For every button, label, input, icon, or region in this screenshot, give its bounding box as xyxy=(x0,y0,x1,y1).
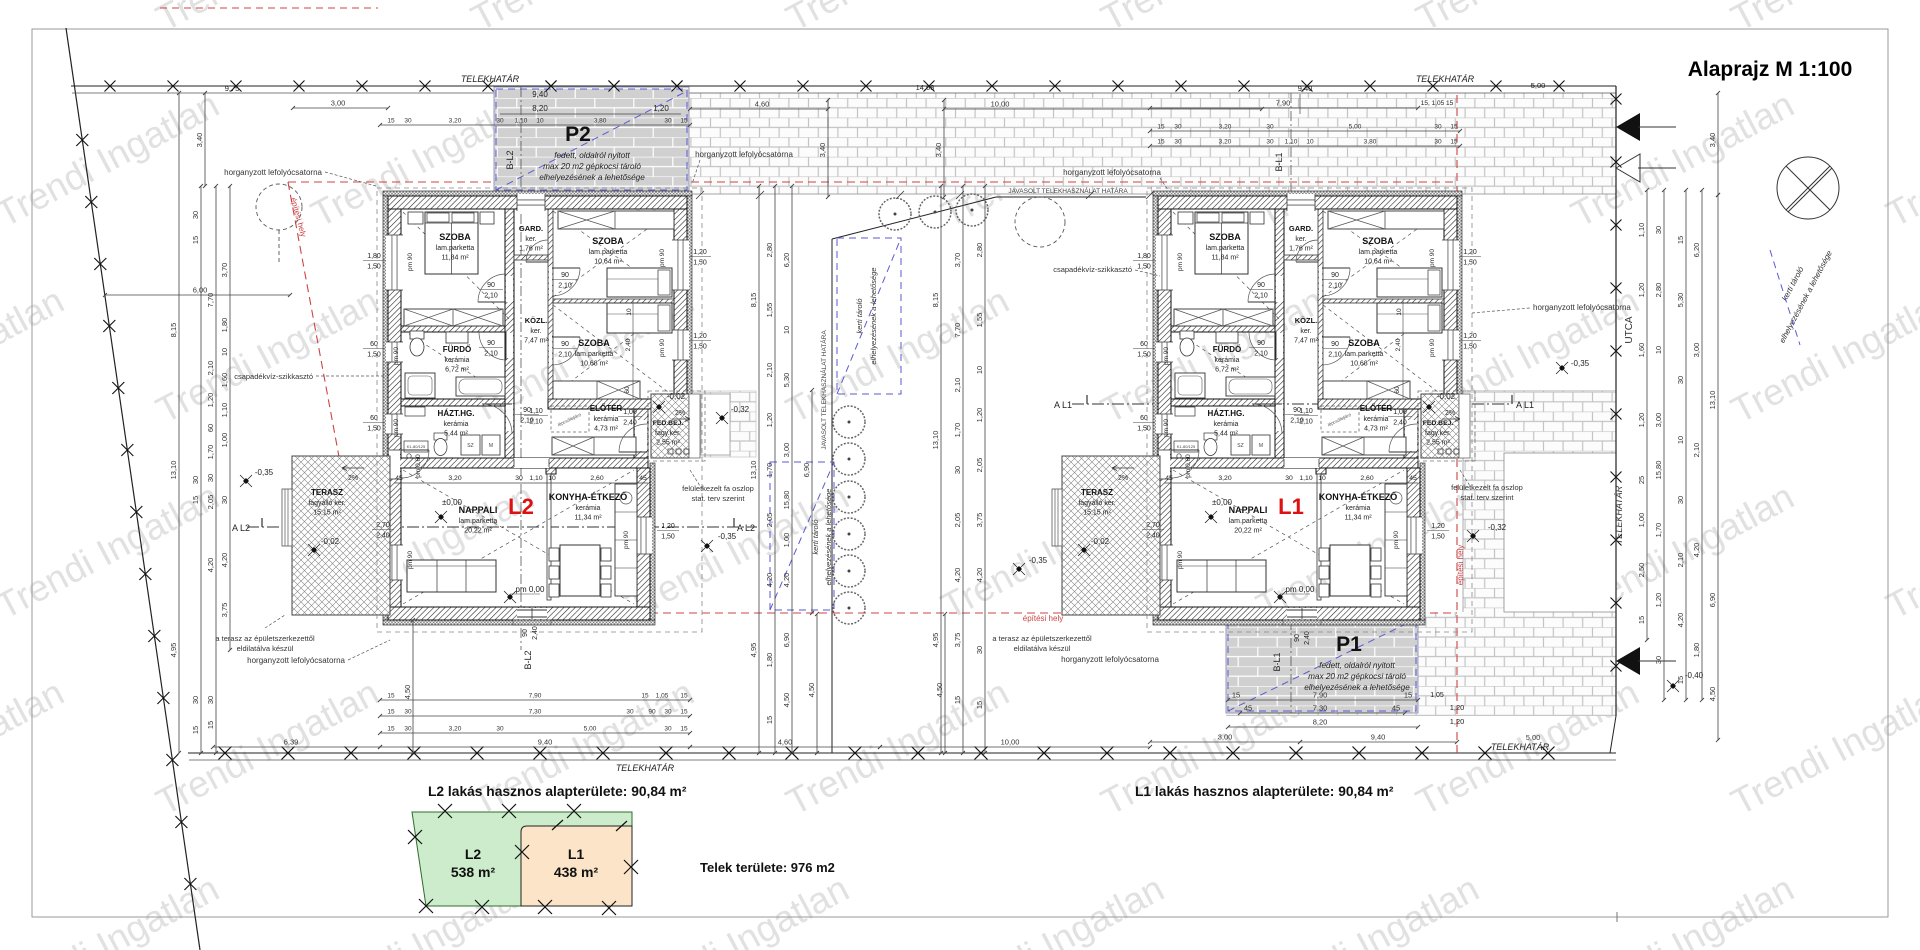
svg-text:10,68 m²: 10,68 m² xyxy=(580,361,608,368)
svg-text:horganyzott lefolyócsatorna: horganyzott lefolyócsatorna xyxy=(1061,655,1159,664)
svg-text:15: 15 xyxy=(680,726,688,733)
svg-text:A L1: A L1 xyxy=(1516,400,1534,410)
svg-text:ELŐTÉR: ELŐTÉR xyxy=(590,404,623,413)
svg-text:M: M xyxy=(489,443,493,449)
svg-text:horganyzott lefolyócsatorna: horganyzott lefolyócsatorna xyxy=(1533,303,1631,312)
svg-text:1,70: 1,70 xyxy=(1654,523,1663,538)
svg-text:L1 lakás hasznos alapterülete:: L1 lakás hasznos alapterülete: 90,84 m² xyxy=(1135,784,1394,799)
svg-text:15, 1,05 15: 15, 1,05 15 xyxy=(1421,100,1454,107)
svg-text:3,40: 3,40 xyxy=(1708,133,1717,148)
svg-text:14,68: 14,68 xyxy=(916,83,935,92)
svg-text:15: 15 xyxy=(387,693,395,700)
svg-text:lam.parketta: lam.parketta xyxy=(436,245,475,252)
svg-text:2,10: 2,10 xyxy=(558,283,572,290)
svg-text:60: 60 xyxy=(624,386,631,394)
svg-text:2,10: 2,10 xyxy=(206,361,215,376)
svg-text:7,90: 7,90 xyxy=(1276,99,1291,108)
svg-text:1,20: 1,20 xyxy=(206,393,215,408)
svg-text:1,76 m²: 1,76 m² xyxy=(519,246,543,253)
svg-text:4,20: 4,20 xyxy=(765,573,774,588)
svg-text:30: 30 xyxy=(1676,496,1685,504)
svg-text:1,70: 1,70 xyxy=(206,445,215,460)
svg-text:30: 30 xyxy=(1266,139,1274,146)
svg-text:-0,40: -0,40 xyxy=(1685,671,1704,680)
svg-text:5,30: 5,30 xyxy=(1676,293,1685,308)
svg-text:7,90: 7,90 xyxy=(529,693,542,700)
svg-text:3,20: 3,20 xyxy=(449,726,462,733)
svg-text:ker.: ker. xyxy=(525,236,536,243)
svg-text:30: 30 xyxy=(975,646,984,654)
svg-text:KÖZL.: KÖZL. xyxy=(525,316,548,325)
svg-text:15: 15 xyxy=(1157,124,1165,131)
svg-text:JAVASOLT TELEKHASZNÁLAT HATÁRA: JAVASOLT TELEKHASZNÁLAT HATÁRA xyxy=(1008,186,1128,195)
svg-text:45: 45 xyxy=(395,475,403,482)
svg-text:13,10: 13,10 xyxy=(931,431,940,450)
svg-text:4,95: 4,95 xyxy=(169,643,178,658)
svg-text:elhelyezésének a-lehetősége: elhelyezésének a-lehetősége xyxy=(869,267,878,364)
svg-text:15: 15 xyxy=(680,118,688,125)
svg-text:6,90: 6,90 xyxy=(802,463,811,478)
svg-text:6,90: 6,90 xyxy=(1708,593,1717,608)
svg-text:3,20: 3,20 xyxy=(448,475,461,482)
svg-text:kerámia: kerámia xyxy=(445,357,470,364)
svg-text:90: 90 xyxy=(1294,634,1301,642)
svg-text:KONYHA-ÉTKEZŐ: KONYHA-ÉTKEZŐ xyxy=(549,491,628,502)
svg-text:TELEKHATÁR: TELEKHATÁR xyxy=(1491,742,1550,752)
svg-text:-0,35: -0,35 xyxy=(255,468,274,477)
svg-text:fagy.ker.: fagy.ker. xyxy=(655,430,681,437)
svg-text:SZOBA: SZOBA xyxy=(439,232,471,242)
svg-text:9,40: 9,40 xyxy=(1298,84,1313,93)
svg-text:15: 15 xyxy=(191,496,200,504)
svg-text:10: 10 xyxy=(1676,436,1685,444)
svg-text:20,22 m²: 20,22 m² xyxy=(464,528,492,535)
svg-text:P2: P2 xyxy=(565,123,591,146)
svg-text:4,60: 4,60 xyxy=(778,738,793,747)
svg-text:1,80: 1,80 xyxy=(367,253,381,260)
svg-text:pm 90: pm 90 xyxy=(407,551,414,569)
svg-text:15: 15 xyxy=(975,701,984,709)
svg-text:5,00: 5,00 xyxy=(1531,81,1546,90)
svg-text:30: 30 xyxy=(664,726,672,733)
svg-text:13,10: 13,10 xyxy=(1708,391,1717,410)
svg-text:45: 45 xyxy=(1392,704,1400,713)
svg-text:15: 15 xyxy=(1450,139,1458,146)
svg-text:pm 90: pm 90 xyxy=(659,249,666,267)
svg-text:30: 30 xyxy=(953,466,962,474)
svg-text:B-L1: B-L1 xyxy=(1274,152,1284,171)
svg-text:max 20 m2 gépkocsi tároló: max 20 m2 gépkocsi tároló xyxy=(543,162,641,171)
svg-text:10: 10 xyxy=(782,326,791,334)
svg-text:3,00: 3,00 xyxy=(1654,413,1663,428)
svg-text:SZOBA: SZOBA xyxy=(578,338,610,348)
svg-text:10,64 m²: 10,64 m² xyxy=(594,259,622,266)
svg-text:8,15: 8,15 xyxy=(931,293,940,308)
svg-text:15: 15 xyxy=(387,118,395,125)
svg-text:10: 10 xyxy=(536,118,544,125)
svg-text:pm 90: pm 90 xyxy=(623,531,630,549)
svg-text:lam.parketta: lam.parketta xyxy=(589,249,628,256)
svg-text:5,44 m²: 5,44 m² xyxy=(444,431,468,438)
svg-text:15: 15 xyxy=(680,709,688,716)
svg-text:4,95: 4,95 xyxy=(749,643,758,658)
svg-text:pm 90: pm 90 xyxy=(659,339,666,357)
svg-text:1,70: 1,70 xyxy=(953,423,962,438)
svg-text:6,72 m²: 6,72 m² xyxy=(445,367,469,374)
svg-text:2,70: 2,70 xyxy=(376,522,390,529)
svg-text:7,30: 7,30 xyxy=(529,709,542,716)
svg-text:±0,00: ±0,00 xyxy=(442,498,463,507)
svg-text:30: 30 xyxy=(191,476,200,484)
svg-text:B-L1: B-L1 xyxy=(1272,652,1282,671)
svg-text:6,00: 6,00 xyxy=(193,286,208,295)
svg-text:3,75: 3,75 xyxy=(220,603,229,618)
svg-text:1,10: 1,10 xyxy=(515,118,528,125)
svg-text:L1: L1 xyxy=(568,846,585,862)
svg-text:kerti tároló: kerti tároló xyxy=(855,298,864,333)
svg-text:2,10: 2,10 xyxy=(1692,443,1701,458)
svg-text:3,20: 3,20 xyxy=(1219,124,1232,131)
svg-text:horganyzott lefolyócsatorna: horganyzott lefolyócsatorna xyxy=(247,656,345,665)
svg-text:pm 90: pm 90 xyxy=(407,253,414,271)
svg-text:3,80: 3,80 xyxy=(1364,139,1377,146)
svg-text:30: 30 xyxy=(191,211,200,219)
svg-text:30: 30 xyxy=(220,496,229,504)
svg-text:elhelyezésének a lehetősége: elhelyezésének a lehetősége xyxy=(824,489,833,586)
svg-text:stat. terv szerint: stat. terv szerint xyxy=(1461,493,1515,502)
svg-text:2%: 2% xyxy=(348,475,358,482)
svg-text:8,20: 8,20 xyxy=(1313,718,1328,727)
svg-text:1,20: 1,20 xyxy=(1654,593,1663,608)
svg-text:1,50: 1,50 xyxy=(367,264,381,271)
svg-text:-0,35: -0,35 xyxy=(1029,556,1048,565)
svg-text:L2 lakás hasznos alapterülete:: L2 lakás hasznos alapterülete: 90,84 m² xyxy=(428,784,687,799)
svg-text:SZ: SZ xyxy=(467,443,473,449)
svg-text:4,20: 4,20 xyxy=(1676,613,1685,628)
svg-text:15,15 m²: 15,15 m² xyxy=(313,510,341,517)
svg-text:1,20: 1,20 xyxy=(693,249,707,256)
svg-text:15: 15 xyxy=(1637,616,1646,624)
svg-text:FED.BEJ.: FED.BEJ. xyxy=(653,420,684,427)
svg-text:3,40: 3,40 xyxy=(195,133,204,148)
svg-text:TELEKHATÁR: TELEKHATÁR xyxy=(1614,485,1624,544)
svg-text:lam.parketta: lam.parketta xyxy=(575,351,614,358)
svg-text:kerámia: kerámia xyxy=(576,505,601,512)
svg-text:kerámia: kerámia xyxy=(594,416,619,423)
svg-text:10: 10 xyxy=(220,348,229,356)
svg-text:30: 30 xyxy=(206,696,215,704)
svg-text:2,05: 2,05 xyxy=(206,495,215,510)
svg-text:30: 30 xyxy=(1654,226,1663,234)
svg-text:45: 45 xyxy=(639,475,647,482)
svg-text:1,60: 1,60 xyxy=(1637,343,1646,358)
svg-text:1,80: 1,80 xyxy=(220,318,229,333)
svg-text:B-L2: B-L2 xyxy=(505,150,515,169)
svg-text:lam.parketta: lam.parketta xyxy=(459,518,498,525)
svg-text:5,00: 5,00 xyxy=(1526,733,1541,742)
svg-text:15: 15 xyxy=(1450,124,1458,131)
svg-text:1,20: 1,20 xyxy=(1637,283,1646,298)
svg-text:7,30: 7,30 xyxy=(1313,704,1328,713)
svg-text:4,50: 4,50 xyxy=(782,693,791,708)
svg-text:-0,35: -0,35 xyxy=(1571,359,1590,368)
svg-text:1,50: 1,50 xyxy=(693,260,707,267)
svg-text:1,00: 1,00 xyxy=(1637,513,1646,528)
svg-text:9,40: 9,40 xyxy=(538,738,553,747)
svg-text:3,75: 3,75 xyxy=(953,633,962,648)
svg-text:1,20: 1,20 xyxy=(975,408,984,423)
svg-text:7,47 m²: 7,47 m² xyxy=(524,338,548,345)
svg-text:2,05: 2,05 xyxy=(975,458,984,473)
svg-text:6,90: 6,90 xyxy=(782,633,791,648)
svg-text:3,40: 3,40 xyxy=(934,143,943,158)
svg-text:25: 25 xyxy=(1637,476,1646,484)
svg-text:1,00: 1,00 xyxy=(782,533,791,548)
svg-text:6,20: 6,20 xyxy=(1692,243,1701,258)
svg-text:2,80: 2,80 xyxy=(975,243,984,258)
svg-text:30: 30 xyxy=(404,118,412,125)
svg-text:2,10: 2,10 xyxy=(484,351,498,358)
svg-text:30: 30 xyxy=(1654,656,1663,664)
svg-text:3,70: 3,70 xyxy=(953,253,962,268)
svg-text:L2: L2 xyxy=(465,846,482,862)
svg-text:-0,02: -0,02 xyxy=(321,537,340,546)
svg-text:15: 15 xyxy=(191,726,200,734)
svg-text:15,80: 15,80 xyxy=(782,491,791,510)
svg-text:stat. terv szerint: stat. terv szerint xyxy=(692,494,746,503)
svg-text:1,50: 1,50 xyxy=(367,426,381,433)
svg-text:1,55: 1,55 xyxy=(975,313,984,328)
svg-text:UTCA: UTCA xyxy=(1624,316,1635,344)
svg-text:-0,32: -0,32 xyxy=(1488,523,1507,532)
svg-text:45: 45 xyxy=(1244,704,1252,713)
svg-text:a terasz az épületszerkezettől: a terasz az épületszerkezettől xyxy=(992,634,1092,643)
svg-text:fedett, oldalról nyitott: fedett, oldalról nyitott xyxy=(1319,661,1395,670)
svg-text:8,15: 8,15 xyxy=(749,293,758,308)
svg-text:3,00: 3,00 xyxy=(1218,733,1233,742)
svg-text:30: 30 xyxy=(496,118,504,125)
svg-text:Telek területe: 976 m2: Telek területe: 976 m2 xyxy=(700,860,835,875)
svg-text:2,05: 2,05 xyxy=(765,513,774,528)
svg-text:5,30: 5,30 xyxy=(782,373,791,388)
svg-text:TELEKHATÁR: TELEKHATÁR xyxy=(1416,74,1475,84)
svg-text:horganyzott lefolyócsatorna: horganyzott lefolyócsatorna xyxy=(1063,168,1161,177)
svg-text:11,34 m²: 11,34 m² xyxy=(574,515,602,522)
svg-text:2,40: 2,40 xyxy=(623,420,637,427)
svg-text:30: 30 xyxy=(626,709,634,716)
svg-text:4,20: 4,20 xyxy=(953,568,962,583)
svg-text:1,20: 1,20 xyxy=(765,413,774,428)
svg-text:11,84 m²: 11,84 m² xyxy=(441,255,469,262)
svg-text:A L2: A L2 xyxy=(737,523,755,533)
svg-text:SZOBA: SZOBA xyxy=(592,236,624,246)
svg-text:10,00: 10,00 xyxy=(991,100,1010,109)
svg-text:3,75: 3,75 xyxy=(975,513,984,528)
svg-text:1,10: 1,10 xyxy=(529,408,543,415)
svg-text:3,80: 3,80 xyxy=(594,118,607,125)
svg-text:15: 15 xyxy=(206,721,215,729)
svg-text:30: 30 xyxy=(404,709,412,716)
svg-text:1,10: 1,10 xyxy=(529,475,542,482)
svg-text:A L2: A L2 xyxy=(232,523,250,533)
svg-text:30: 30 xyxy=(1434,139,1442,146)
svg-text:15: 15 xyxy=(387,709,395,716)
svg-text:TELEKHATÁR: TELEKHATÁR xyxy=(461,74,520,84)
svg-text:csapadékvíz-szikkasztó: csapadékvíz-szikkasztó xyxy=(234,372,313,381)
svg-text:1,20: 1,20 xyxy=(653,104,669,113)
svg-text:1,80: 1,80 xyxy=(765,653,774,668)
svg-text:1,00: 1,00 xyxy=(623,409,637,416)
svg-text:2,10: 2,10 xyxy=(765,363,774,378)
svg-text:kerámia: kerámia xyxy=(444,421,469,428)
svg-text:4,50: 4,50 xyxy=(403,685,412,700)
svg-text:1,20: 1,20 xyxy=(1450,717,1465,726)
svg-text:30: 30 xyxy=(1266,124,1274,131)
svg-text:HÁZT.HG.: HÁZT.HG. xyxy=(438,409,475,418)
svg-text:TELEKHATÁR: TELEKHATÁR xyxy=(616,763,675,773)
svg-text:6,39: 6,39 xyxy=(284,738,299,747)
svg-text:60: 60 xyxy=(206,424,215,432)
svg-text:4,20: 4,20 xyxy=(220,553,229,568)
svg-text:9,40: 9,40 xyxy=(1371,733,1386,742)
svg-text:2,40: 2,40 xyxy=(625,338,632,351)
svg-text:felületkezelt fa oszlop: felületkezelt fa oszlop xyxy=(1451,483,1523,492)
svg-text:1,50: 1,50 xyxy=(367,352,381,359)
svg-text:2,10: 2,10 xyxy=(558,352,572,359)
svg-text:2,10: 2,10 xyxy=(484,293,498,300)
svg-text:10,00: 10,00 xyxy=(1001,738,1020,747)
svg-text:2%: 2% xyxy=(675,410,685,417)
svg-text:ker.: ker. xyxy=(530,328,541,335)
svg-text:max 20 m2 gépkocsi tároló: max 20 m2 gépkocsi tároló xyxy=(1308,672,1406,681)
svg-text:10: 10 xyxy=(548,475,556,482)
svg-text:4,95: 4,95 xyxy=(931,633,940,648)
svg-text:3,00: 3,00 xyxy=(782,443,791,458)
svg-text:horganyzott lefolyócsatorna: horganyzott lefolyócsatorna xyxy=(224,168,322,177)
svg-text:1,05: 1,05 xyxy=(656,693,669,700)
svg-text:2,10: 2,10 xyxy=(1676,553,1685,568)
svg-text:3,00: 3,00 xyxy=(331,99,346,108)
svg-text:8,20: 8,20 xyxy=(532,104,548,113)
svg-text:2,80: 2,80 xyxy=(1654,283,1663,298)
svg-text:pm 0,00: pm 0,00 xyxy=(516,585,545,594)
svg-text:30: 30 xyxy=(1174,124,1182,131)
svg-text:15: 15 xyxy=(387,726,395,733)
svg-text:10: 10 xyxy=(626,308,633,316)
svg-text:90: 90 xyxy=(648,709,656,716)
svg-text:15: 15 xyxy=(680,693,688,700)
svg-text:9,75: 9,75 xyxy=(225,84,240,93)
svg-text:2,60: 2,60 xyxy=(590,475,603,482)
svg-text:15: 15 xyxy=(191,236,200,244)
svg-text:1,20: 1,20 xyxy=(1450,703,1465,712)
svg-text:90: 90 xyxy=(522,629,529,637)
svg-text:L2: L2 xyxy=(508,494,534,519)
svg-text:3,20: 3,20 xyxy=(449,118,462,125)
svg-text:4,73 m²: 4,73 m² xyxy=(594,426,618,433)
svg-text:4,20: 4,20 xyxy=(1692,543,1701,558)
svg-text:13,10: 13,10 xyxy=(169,461,178,480)
svg-text:1,00: 1,00 xyxy=(220,433,229,448)
svg-text:30: 30 xyxy=(1434,124,1442,131)
svg-text:JAVASOLT TELEKHASZNÁLAT HATÁRA: JAVASOLT TELEKHASZNÁLAT HATÁRA xyxy=(819,330,828,450)
svg-text:90: 90 xyxy=(487,340,495,347)
svg-text:eldilatálva készül: eldilatálva készül xyxy=(1014,644,1071,653)
svg-text:-0,32: -0,32 xyxy=(731,405,750,414)
svg-text:P1: P1 xyxy=(1336,633,1362,656)
svg-text:15: 15 xyxy=(1157,139,1165,146)
svg-text:fagyálló ker.: fagyálló ker. xyxy=(308,500,345,507)
svg-text:K1-80/125: K1-80/125 xyxy=(407,444,426,449)
svg-text:1,10: 1,10 xyxy=(220,403,229,418)
svg-text:1,80: 1,80 xyxy=(1692,643,1701,658)
svg-text:15: 15 xyxy=(1676,676,1685,684)
svg-text:2,80: 2,80 xyxy=(765,243,774,258)
svg-text:5,00: 5,00 xyxy=(584,726,597,733)
svg-text:3,70: 3,70 xyxy=(220,263,229,278)
svg-text:1,10: 1,10 xyxy=(1637,223,1646,238)
svg-text:1,50: 1,50 xyxy=(693,344,707,351)
svg-text:10: 10 xyxy=(1654,346,1663,354)
svg-text:1,05: 1,05 xyxy=(1430,692,1444,699)
svg-text:építési hely: építési hely xyxy=(1456,545,1465,585)
svg-text:4,50: 4,50 xyxy=(807,683,816,698)
svg-text:eldilatálva készül: eldilatálva készül xyxy=(237,644,294,653)
svg-text:Alaprajz M 1:100: Alaprajz M 1:100 xyxy=(1688,58,1853,81)
svg-text:15: 15 xyxy=(1676,236,1685,244)
svg-text:2,05: 2,05 xyxy=(953,513,962,528)
svg-text:30: 30 xyxy=(515,475,523,482)
svg-text:felületkezelt fa oszlop: felületkezelt fa oszlop xyxy=(682,484,754,493)
svg-text:1,55: 1,55 xyxy=(765,303,774,318)
svg-text:TERASZ: TERASZ xyxy=(311,488,343,497)
svg-text:építési hely: építési hely xyxy=(1023,614,1063,623)
svg-text:NAPPALI: NAPPALI xyxy=(459,505,498,515)
svg-text:4,20: 4,20 xyxy=(975,568,984,583)
svg-text:1,10: 1,10 xyxy=(1285,139,1298,146)
svg-text:horganyzott lefolyócsatorna: horganyzott lefolyócsatorna xyxy=(695,150,793,159)
svg-text:15: 15 xyxy=(1232,691,1240,700)
svg-text:-0,02: -0,02 xyxy=(667,392,686,401)
svg-text:30: 30 xyxy=(206,474,215,482)
svg-text:7,90: 7,90 xyxy=(1313,691,1328,700)
svg-text:1,70: 1,70 xyxy=(765,463,774,478)
svg-text:30: 30 xyxy=(1676,376,1685,384)
svg-text:30: 30 xyxy=(664,118,672,125)
svg-text:2,40: 2,40 xyxy=(532,626,539,640)
svg-text:1,60: 1,60 xyxy=(220,373,229,388)
svg-text:7,70: 7,70 xyxy=(953,323,962,338)
svg-text:3,20: 3,20 xyxy=(1219,139,1232,146)
svg-text:1,50: 1,50 xyxy=(661,534,675,541)
svg-text:90: 90 xyxy=(561,272,569,279)
svg-text:538 m²: 538 m² xyxy=(451,864,496,880)
svg-text:2,50: 2,50 xyxy=(1637,563,1646,578)
svg-text:3,00: 3,00 xyxy=(1692,343,1701,358)
svg-text:L1: L1 xyxy=(1278,494,1304,519)
svg-text:10: 10 xyxy=(975,366,984,374)
svg-text:15: 15 xyxy=(1404,691,1412,700)
svg-text:4,50: 4,50 xyxy=(935,683,944,698)
svg-text:438 m²: 438 m² xyxy=(554,864,599,880)
svg-text:pm 90: pm 90 xyxy=(393,347,400,365)
svg-text:4,20: 4,20 xyxy=(782,573,791,588)
svg-text:1,20: 1,20 xyxy=(661,523,675,530)
svg-text:B-L2: B-L2 xyxy=(523,650,533,669)
svg-text:3,40: 3,40 xyxy=(818,143,827,158)
svg-text:pm 0,60: pm 0,60 xyxy=(415,454,422,478)
svg-text:13,10: 13,10 xyxy=(749,461,758,480)
